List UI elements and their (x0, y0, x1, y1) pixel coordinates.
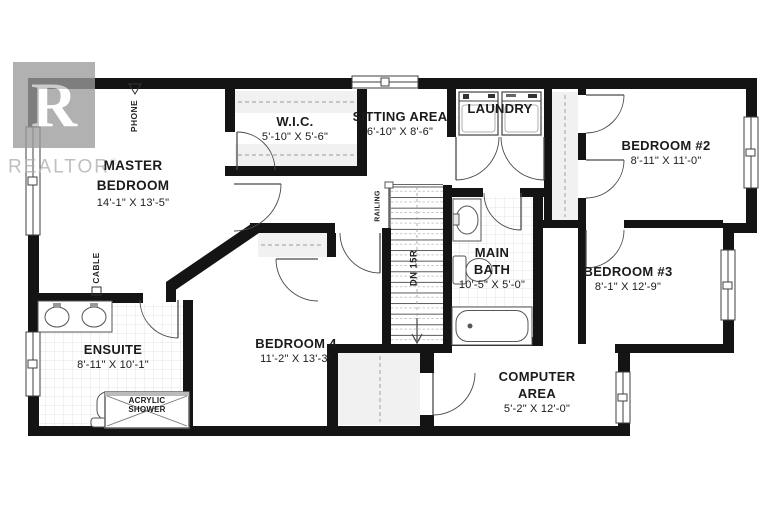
room-label-wic: W.I.C. 5'-10" X 5'-6" (262, 113, 328, 145)
bedroom2-door (586, 95, 624, 133)
room-name: BEDROOM 4 (255, 335, 336, 352)
room-name: COMPUTER (499, 368, 576, 385)
label-acrylic-shower: ACRYLIC SHOWER (128, 396, 165, 414)
room-label-computer-area: COMPUTER AREA 5'-2" X 12'-0" (499, 368, 576, 417)
bedroom2-window (744, 117, 758, 188)
label-stairs-dn-15r: DN 15R (409, 250, 420, 286)
label-phone: PHONE (129, 100, 139, 132)
floor-plan: R REALTOR® (0, 0, 770, 510)
bath-sink (453, 199, 481, 241)
bedroom4-door (340, 233, 380, 273)
room-dims: 14'-1" X 13'-5" (97, 196, 170, 211)
sitting-area-window (352, 76, 418, 88)
room-name: LAUNDRY (467, 100, 532, 117)
room-name: BEDROOM #3 (584, 263, 673, 280)
room-name: BEDROOM #2 (622, 137, 711, 154)
room-dims: 5'-2" X 12'-0" (499, 402, 576, 417)
room-label-main-bath: MAIN BATH 10'-5" X 5'-0" (459, 244, 525, 293)
room-name: AREA (499, 385, 576, 402)
laundry-double-doors (456, 137, 544, 180)
computer-area-window (616, 372, 630, 423)
room-name: BATH (459, 261, 525, 278)
room-dims: 6'-10" X 8'-6" (353, 125, 448, 140)
room-dims: 8'-11" X 11'-0" (622, 154, 711, 169)
floor-plan-drawing (0, 0, 770, 510)
room-label-bedroom3: BEDROOM #3 8'-1" X 12'-9" (584, 263, 673, 295)
ensuite-window (26, 332, 40, 396)
fixture-name: SHOWER (128, 405, 165, 414)
label-cable: CABLE (91, 252, 101, 283)
bathtub (452, 307, 532, 345)
room-dims: 8'-11" X 10'-1" (77, 358, 149, 373)
room-name: ENSUITE (77, 341, 149, 358)
railing-post (385, 182, 393, 188)
room-name: SITTING AREA (353, 108, 448, 125)
computer-area-door (433, 373, 475, 415)
bedroom4-closet-door (276, 259, 318, 301)
room-label-bedroom2: BEDROOM #2 8'-11" X 11'-0" (622, 137, 711, 169)
room-label-bedroom4: BEDROOM 4 11'-2" X 13'-3" (255, 335, 336, 367)
room-name: MASTER (97, 156, 170, 176)
ensuite-vanity (38, 301, 112, 332)
computer-area-closet (338, 353, 420, 425)
bedroom2-closet-door (586, 160, 624, 198)
room-label-master-bedroom: MASTER BEDROOM 14'-1" X 13'-5" (97, 156, 170, 211)
master-window (26, 127, 40, 235)
room-dims: 10'-5" X 5'-0" (459, 278, 525, 293)
room-label-ensuite: ENSUITE 8'-11" X 10'-1" (77, 341, 149, 373)
room-dims: 5'-10" X 5'-6" (262, 130, 328, 145)
label-railing: RAILING (375, 190, 382, 222)
fixture-name: ACRYLIC (128, 396, 165, 405)
room-name: BEDROOM (97, 176, 170, 196)
room-name: MAIN (459, 244, 525, 261)
room-label-laundry: LAUNDRY (467, 100, 532, 117)
room-label-sitting-area: SITTING AREA 6'-10" X 8'-6" (353, 108, 448, 140)
room-dims: 8'-1" X 12'-9" (584, 280, 673, 295)
room-dims: 11'-2" X 13'-3" (255, 352, 336, 367)
room-name: W.I.C. (262, 113, 328, 130)
bedroom3-window (721, 250, 735, 320)
